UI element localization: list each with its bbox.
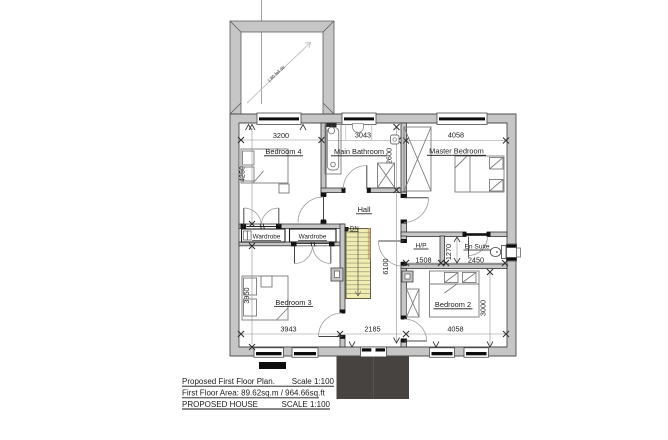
svg-text:H/P: H/P [416, 243, 428, 250]
svg-text:3200: 3200 [273, 131, 289, 140]
svg-text:First Floor Area: 89.62sq.m /: First Floor Area: 89.62sq.m / 964.66sq.f… [182, 389, 326, 398]
svg-text:Proposed First Floor Plan.: Proposed First Floor Plan. [182, 377, 275, 386]
svg-text:2450: 2450 [468, 256, 484, 265]
svg-text:Wardrobe: Wardrobe [253, 234, 281, 241]
svg-text:Wardrobe: Wardrobe [299, 234, 327, 241]
svg-text:Main Bathroom: Main Bathroom [334, 147, 384, 156]
svg-text:Bedroom 2: Bedroom 2 [435, 300, 471, 309]
svg-text:3000: 3000 [479, 300, 488, 316]
svg-text:SCALE 1:100: SCALE 1:100 [282, 400, 331, 409]
svg-text:PROPOSED HOUSE: PROPOSED HOUSE [182, 400, 258, 409]
svg-text:3943: 3943 [280, 325, 296, 334]
svg-text:2185: 2185 [364, 325, 380, 334]
svg-text:Master Bedroom: Master Bedroom [429, 147, 484, 156]
svg-text:4058: 4058 [447, 325, 463, 334]
svg-text:6100: 6100 [381, 258, 390, 274]
svg-text:4058: 4058 [448, 131, 464, 140]
svg-text:Scale 1:100: Scale 1:100 [292, 377, 335, 386]
svg-text:1270: 1270 [444, 244, 453, 260]
svg-text:Bedroom 3: Bedroom 3 [275, 298, 311, 307]
svg-text:Bedroom 4: Bedroom 4 [265, 147, 301, 156]
svg-text:1508: 1508 [415, 255, 431, 264]
svg-text:Hall: Hall [357, 205, 370, 214]
svg-text:4250: 4250 [238, 166, 247, 182]
svg-text:En Suite: En Suite [465, 244, 490, 251]
